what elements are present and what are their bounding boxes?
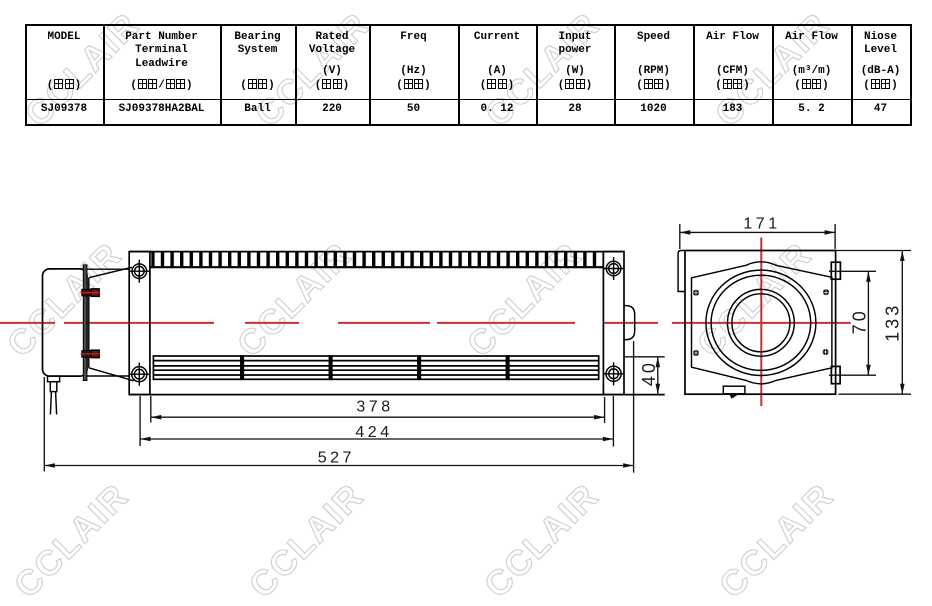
svg-text:171: 171 xyxy=(743,216,780,233)
svg-text:378: 378 xyxy=(356,399,393,416)
svg-text:424: 424 xyxy=(355,424,392,441)
svg-text:40: 40 xyxy=(639,360,659,386)
svg-text:527: 527 xyxy=(318,449,355,466)
svg-text:133: 133 xyxy=(883,303,903,342)
svg-text:70: 70 xyxy=(850,308,870,334)
